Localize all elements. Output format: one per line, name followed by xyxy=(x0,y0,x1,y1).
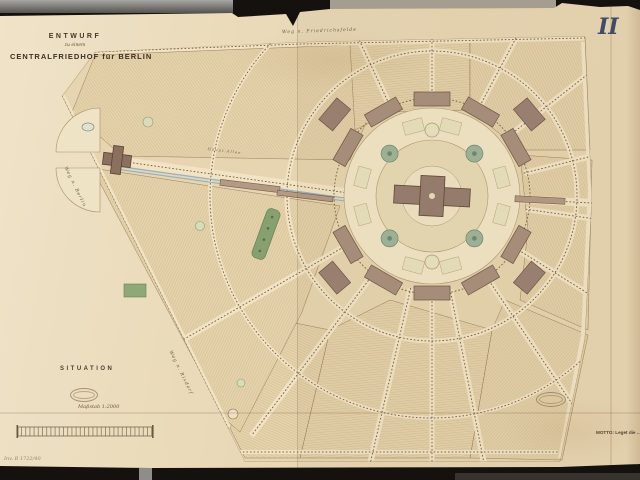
inventory-note: Inv. B 1722/40 xyxy=(4,456,41,462)
situation-label: SITUATION xyxy=(60,366,114,372)
paper-stain xyxy=(230,30,430,90)
scale-caption: Maßstab 1:2000 xyxy=(78,404,119,410)
title-line-2: zu einem xyxy=(10,43,140,48)
oval-stamp-left xyxy=(70,388,98,402)
scanned-plan-photo: ENTWURF zu einem CENTRALFRIEDHOF für BER… xyxy=(0,0,640,480)
scale-bar xyxy=(17,425,154,438)
paper-stain xyxy=(500,395,640,465)
table-surface-bottom xyxy=(455,473,640,480)
ruler-edge xyxy=(0,0,233,13)
title-line-3: CENTRALFRIEDHOF für BERLIN xyxy=(10,52,140,61)
title-block: ENTWURF zu einem CENTRALFRIEDHOF für BER… xyxy=(10,33,140,61)
right-edge-shadow xyxy=(626,0,640,480)
title-line-1: ENTWURF xyxy=(10,33,140,40)
table-surface-notch xyxy=(139,468,152,480)
plan-sheet: ENTWURF zu einem CENTRALFRIEDHOF für BER… xyxy=(0,0,640,480)
